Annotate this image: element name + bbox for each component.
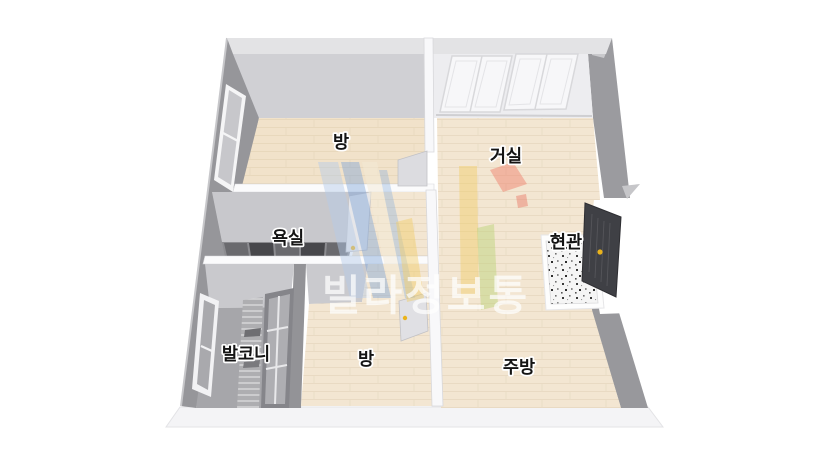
label-entrance: 현관 [550, 233, 582, 253]
living-window-left [440, 56, 512, 112]
floorplan-canvas: 빌라정보통 방 거실 욕실 현관 발코니 방 주방 [0, 0, 840, 472]
living-window-right [504, 54, 578, 110]
label-balcony: 발코니 [222, 345, 270, 365]
entrance-door-handle-icon [597, 249, 602, 254]
floorplan-svg: 빌라정보통 방 거실 욕실 현관 발코니 방 주방 [0, 0, 840, 472]
label-kitchen: 주방 [503, 358, 535, 378]
partition-room-living-upper [424, 38, 434, 152]
exterior-wall-top [227, 38, 612, 54]
label-room-top: 방 [333, 133, 349, 153]
entrance-door [582, 203, 621, 297]
label-bathroom: 욕실 [272, 229, 304, 249]
label-room-bottom: 방 [358, 350, 374, 370]
watermark-text: 빌라정보통 [322, 271, 530, 320]
exterior-wall-bottom [166, 407, 663, 427]
label-living-room: 거실 [490, 147, 522, 167]
living-window-sill [436, 115, 592, 116]
room-top-back-wall [233, 54, 425, 118]
